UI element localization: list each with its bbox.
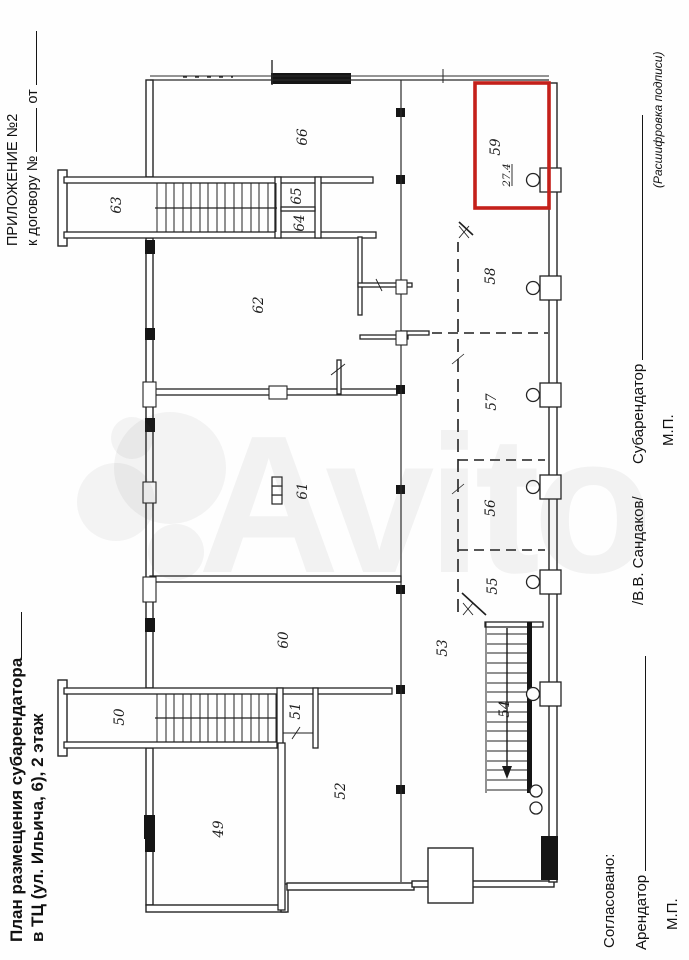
stairs-room50 <box>155 694 277 742</box>
title-blank <box>6 612 22 658</box>
landlord-stamp: М.П. <box>664 898 681 930</box>
subtenant-signature-blank <box>628 115 643 360</box>
room-label-52: 52 <box>333 782 349 799</box>
subtenant-label: Субарендатор <box>630 364 647 464</box>
room-label-51: 51 <box>288 702 304 719</box>
contract-number-blank <box>23 108 37 152</box>
scanned-document-page: 49 50 51 52 53 54 55 56 57 58 60 61 62 6… <box>0 0 689 960</box>
appendix-line1: ПРИЛОЖЕНИЕ №2 <box>4 31 23 246</box>
appendix-header: ПРИЛОЖЕНИЕ №2 к договору № от <box>4 31 43 246</box>
contract-date-label: от <box>25 89 41 103</box>
room61-kiosk-symbol <box>272 477 282 504</box>
room-label-49: 49 <box>211 820 227 839</box>
room-label-63: 63 <box>109 196 125 213</box>
door-window-boxes <box>143 280 407 602</box>
subtenant-signature-row: Субарендатор <box>628 115 647 464</box>
landlord-signature-blank <box>631 656 646 871</box>
dashed-partitions <box>283 222 548 739</box>
room-59-area: 27.4 <box>501 163 513 187</box>
highlighted-room-59 <box>475 83 549 208</box>
floor-plan-sheet: 49 50 51 52 53 54 55 56 57 58 60 61 62 6… <box>0 0 689 960</box>
subtenant-name: /В.В. Сандаков/ <box>630 496 647 605</box>
subtenant-stamp: М.П. <box>660 414 677 446</box>
interior-walls <box>64 177 543 910</box>
room-label-54: 54 <box>497 700 513 717</box>
title-line1: План размещения субарендатора <box>6 612 27 942</box>
room-label-55: 55 <box>485 577 501 594</box>
room-label-66: 66 <box>295 128 311 146</box>
room-label-61: 61 <box>295 482 311 499</box>
contract-number-label: к договору № <box>25 156 41 246</box>
columns <box>144 73 558 880</box>
title-line2: в ТЦ (ул. Ильича, 6), 2 этаж <box>27 612 48 942</box>
room-label-65: 65 <box>289 187 305 204</box>
room-label-59: 59 <box>488 138 504 156</box>
room-label-53: 53 <box>435 639 451 656</box>
stairs-room63 <box>155 183 277 232</box>
landlord-label: Арендатор <box>633 875 650 950</box>
room-label-50: 50 <box>112 708 128 726</box>
room-label-57: 57 <box>484 393 500 411</box>
contract-date-blank <box>23 31 37 85</box>
document-title: План размещения субарендатора в ТЦ (ул. … <box>6 612 48 942</box>
room-label-58: 58 <box>483 267 499 285</box>
room-label-62: 62 <box>251 296 267 313</box>
floor-plan-drawing: 49 50 51 52 53 54 55 56 57 58 60 61 62 6… <box>0 0 689 960</box>
landlord-signature-row: Арендатор <box>631 656 650 950</box>
room-label-56: 56 <box>483 499 499 517</box>
appendix-line2: к договору № от <box>23 31 43 246</box>
room-label-60: 60 <box>276 631 292 649</box>
agreed-label: Согласовано: <box>601 854 618 948</box>
room-label-64: 64 <box>292 214 308 231</box>
decryption-caption: (Расшифровка подписи) <box>651 52 665 188</box>
